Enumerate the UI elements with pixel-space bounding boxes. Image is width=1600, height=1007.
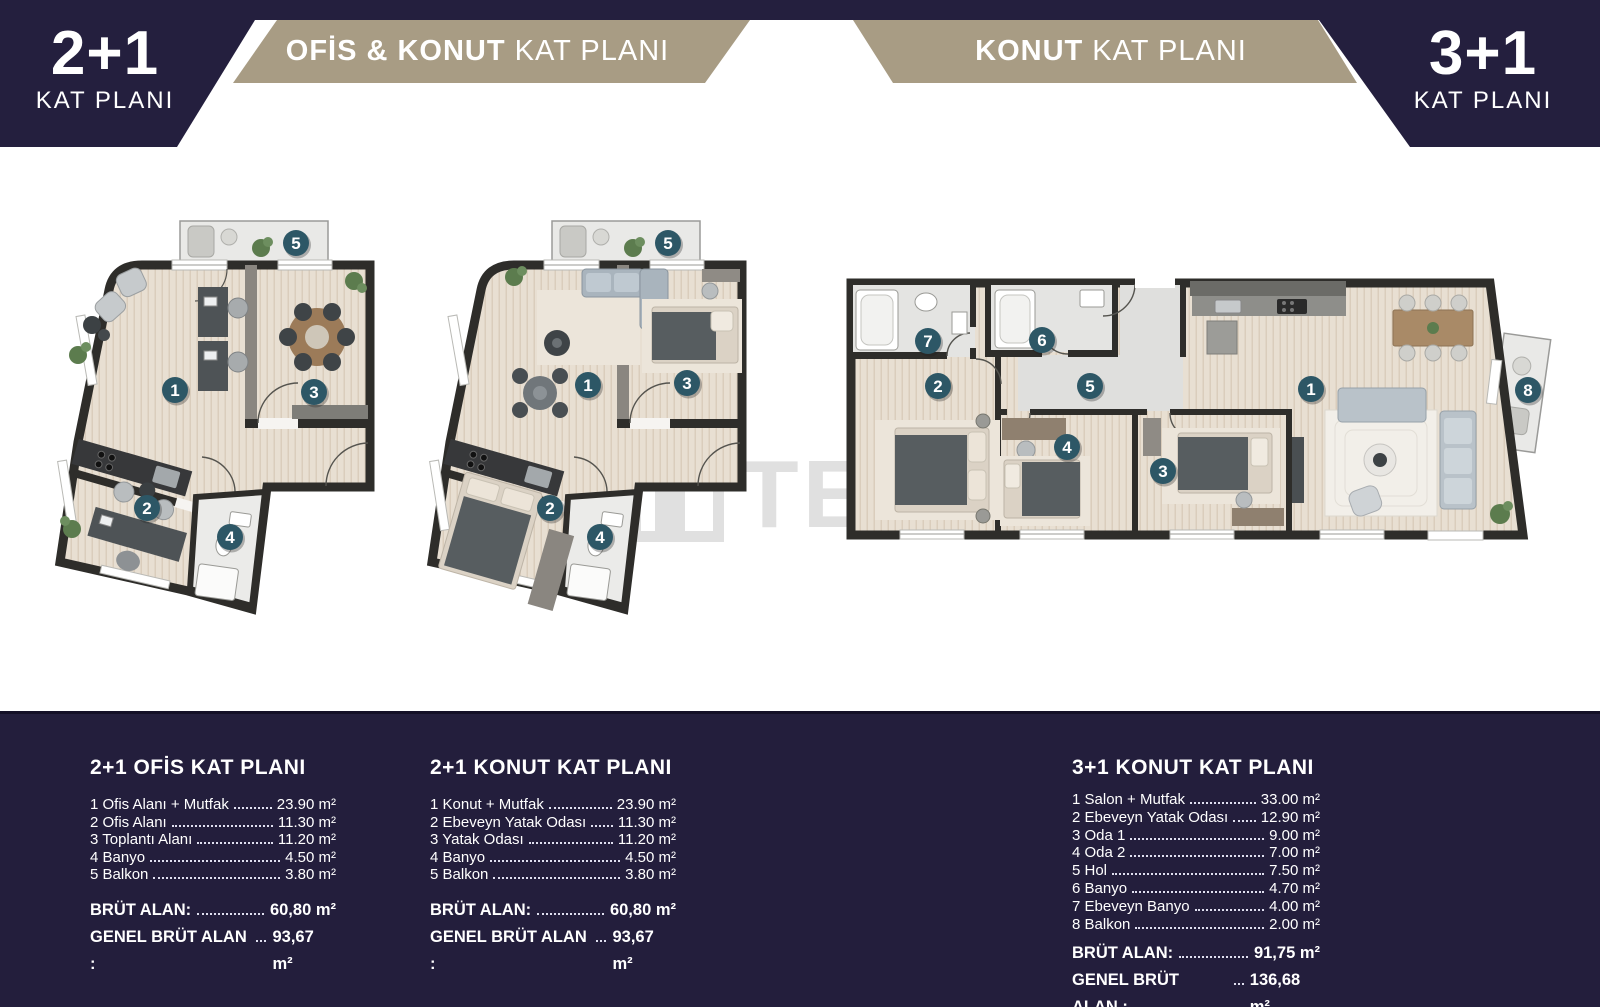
legend-totals: BRÜT ALAN:91,75 m²GENEL BRÜT ALAN : 136,… [1072, 940, 1320, 994]
plan-type-left-small: KAT PLANI [30, 87, 180, 115]
svg-text:8: 8 [1523, 381, 1532, 400]
floorplan-3plus1-konut: 12345678 [840, 268, 1552, 550]
legend-row: 2 Ofis Alanı11.30 m² [90, 814, 336, 832]
plan-type-left-big: 2+1 [30, 24, 180, 84]
entry-floor [1120, 285, 1183, 355]
svg-text:1: 1 [1306, 380, 1315, 399]
legend-row: 5 Hol7.50 m² [1072, 862, 1320, 880]
svg-text:4: 4 [1062, 438, 1072, 457]
svg-text:1: 1 [583, 376, 592, 395]
banner-ofis-konut: OFİS & KONUT KAT PLANI [228, 20, 753, 83]
legend-items: 1 Ofis Alanı + Mutfak23.90 m²2 Ofis Alan… [90, 796, 336, 884]
legend-row: 5 Balkon3.80 m² [430, 866, 676, 884]
svg-text:2: 2 [933, 377, 942, 396]
legend-column-2plus1-konut: 2+1 KONUT KAT PLANI 1 Konut + Mutfak23.9… [430, 714, 676, 951]
svg-text:3: 3 [1158, 462, 1167, 481]
legend-title: 3+1 KONUT KAT PLANI [1072, 756, 1320, 780]
legend-row: 1 Konut + Mutfak23.90 m² [430, 796, 676, 814]
legend-row: 3 Yatak Odası11.20 m² [430, 831, 676, 849]
legend-totals: BRÜT ALAN:60,80 m²GENEL BRÜT ALAN :93,67… [90, 897, 336, 951]
banner-right-bold: KONUT [975, 35, 1083, 68]
legend-items: 1 Konut + Mutfak23.90 m²2 Ebeveyn Yatak … [430, 796, 676, 884]
banner-konut: KONUT KAT PLANI [848, 20, 1360, 83]
floorplan-sheet: TEKCE [0, 0, 1600, 1007]
plan-type-right-big: 3+1 [1408, 24, 1558, 84]
legend-row: 4 Banyo4.50 m² [90, 849, 336, 867]
banner-right-regular: KAT PLANI [1092, 35, 1247, 68]
legend-row: 4 Banyo4.50 m² [430, 849, 676, 867]
legend-title: 2+1 KONUT KAT PLANI [430, 756, 676, 780]
wall-room1-room3 [245, 265, 257, 425]
banner-left-bold: OFİS & KONUT [286, 35, 506, 68]
svg-text:3: 3 [309, 383, 318, 402]
area-legend-panel: 2+1 OFİS KAT PLANI 1 Ofis Alanı + Mutfak… [0, 711, 1600, 1007]
legend-row: 8 Balkon2.00 m² [1072, 916, 1320, 934]
floorplan-2plus1-konut: 12345 [402, 195, 754, 620]
legend-row: 2 Ebeveyn Yatak Odası11.30 m² [430, 814, 676, 832]
header-top-band [0, 0, 1600, 20]
legend-row: BRÜT ALAN:60,80 m² [430, 897, 676, 924]
svg-text:7: 7 [923, 332, 932, 351]
floorplan-2plus1-ofis: 12345 [30, 195, 382, 620]
legend-row: GENEL BRÜT ALAN :93,67 m² [90, 924, 336, 951]
legend-row: 5 Balkon3.80 m² [90, 866, 336, 884]
legend-row: BRÜT ALAN:60,80 m² [90, 897, 336, 924]
legend-totals: BRÜT ALAN:60,80 m²GENEL BRÜT ALAN :93,67… [430, 897, 676, 951]
legend-row: GENEL BRÜT ALAN :93,67 m² [430, 924, 676, 951]
legend-title: 2+1 OFİS KAT PLANI [90, 756, 336, 780]
plan-type-right: 3+1 KAT PLANI [1408, 24, 1558, 115]
plan-type-left: 2+1 KAT PLANI [30, 24, 180, 115]
legend-row: 1 Ofis Alanı + Mutfak23.90 m² [90, 796, 336, 814]
svg-text:5: 5 [291, 234, 300, 253]
legend-column-3plus1-konut: 3+1 KONUT KAT PLANI 1 Salon + Mutfak33.0… [1072, 714, 1320, 994]
entrance-opening [1135, 278, 1175, 288]
master-bedroom-2 [875, 414, 1000, 523]
svg-text:2: 2 [142, 499, 151, 518]
svg-text:4: 4 [225, 528, 235, 547]
legend-row: BRÜT ALAN:91,75 m² [1072, 940, 1320, 967]
legend-column-2plus1-ofis: 2+1 OFİS KAT PLANI 1 Ofis Alanı + Mutfak… [90, 714, 336, 951]
legend-row: 3 Oda 19.00 m² [1072, 827, 1320, 845]
legend-row: 4 Oda 27.00 m² [1072, 844, 1320, 862]
svg-text:6: 6 [1037, 331, 1046, 350]
legend-row: 3 Toplantı Alanı11.20 m² [90, 831, 336, 849]
legend-row: 2 Ebeveyn Yatak Odası12.90 m² [1072, 809, 1320, 827]
legend-row: 6 Banyo4.70 m² [1072, 880, 1320, 898]
svg-text:2: 2 [545, 499, 554, 518]
svg-text:4: 4 [595, 528, 605, 547]
svg-text:5: 5 [1085, 377, 1094, 396]
legend-items: 1 Salon + Mutfak33.00 m²2 Ebeveyn Yatak … [1072, 791, 1320, 933]
svg-text:5: 5 [663, 234, 672, 253]
legend-row: 1 Salon + Mutfak33.00 m² [1072, 791, 1320, 809]
svg-text:1: 1 [170, 381, 179, 400]
plan-type-right-small: KAT PLANI [1408, 87, 1558, 115]
banner-left-regular: KAT PLANI [515, 35, 670, 68]
legend-row: GENEL BRÜT ALAN : 136,68 m² [1072, 967, 1320, 994]
legend-row: 7 Ebeveyn Banyo4.00 m² [1072, 898, 1320, 916]
svg-text:3: 3 [682, 374, 691, 393]
